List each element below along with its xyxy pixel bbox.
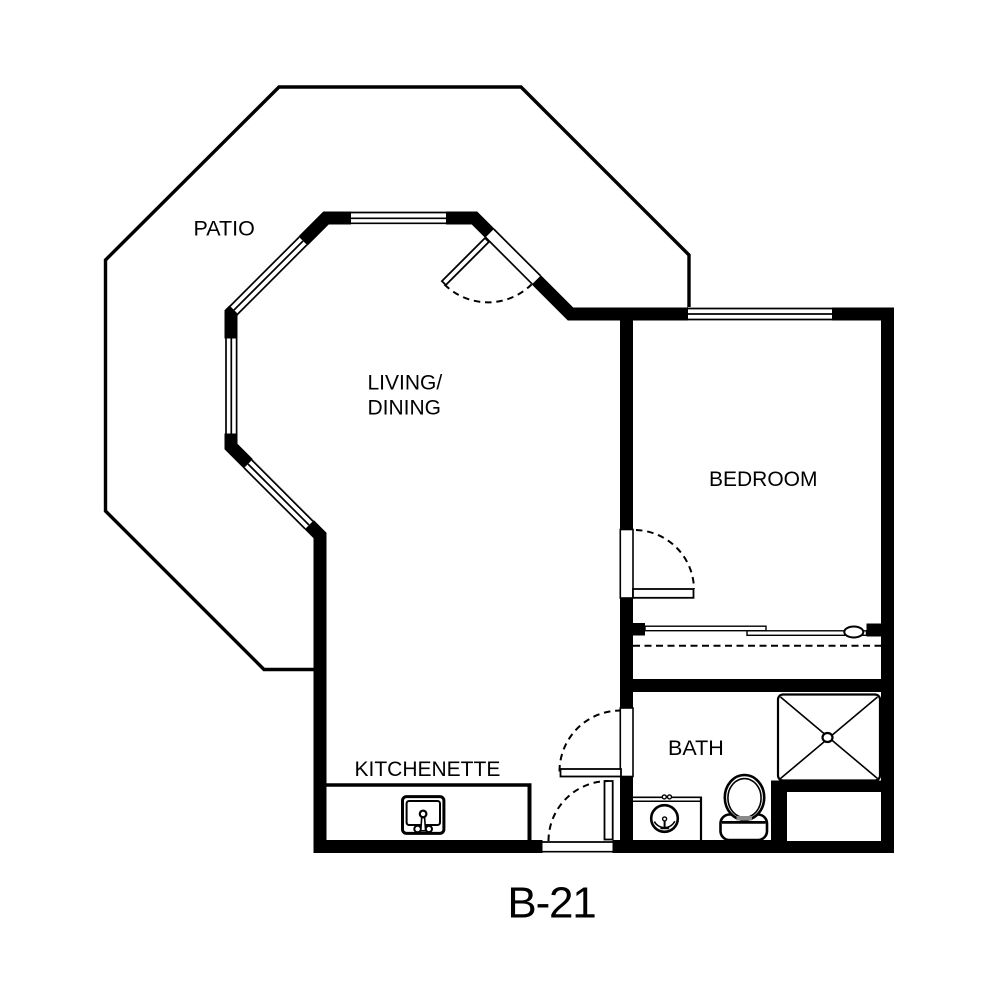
svg-text:B-21: B-21 xyxy=(507,879,595,928)
svg-text:BEDROOM: BEDROOM xyxy=(709,468,818,491)
svg-text:KITCHENETTE: KITCHENETTE xyxy=(355,758,501,781)
svg-text:DINING: DINING xyxy=(368,397,442,420)
svg-text:LIVING/: LIVING/ xyxy=(368,372,443,395)
svg-text:PATIO: PATIO xyxy=(194,217,255,241)
svg-text:BATH: BATH xyxy=(668,736,724,760)
